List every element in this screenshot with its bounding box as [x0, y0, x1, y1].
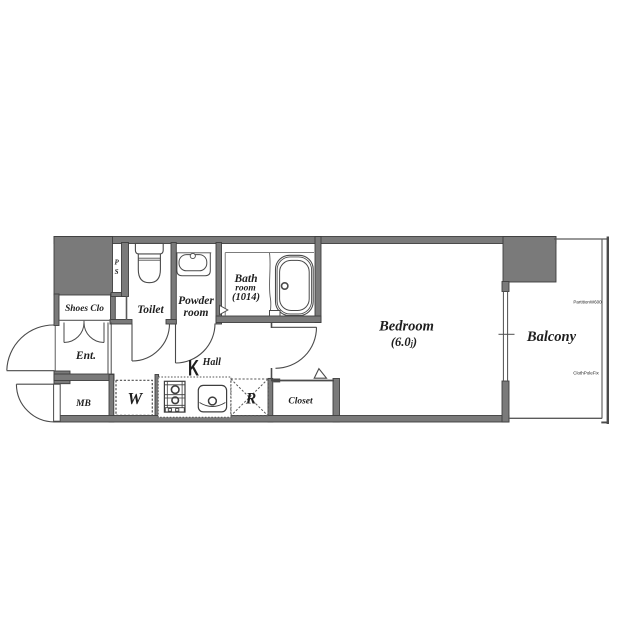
- svg-text:Hall: Hall: [202, 357, 222, 368]
- svg-text:(1014): (1014): [232, 292, 260, 303]
- svg-text:Balcony: Balcony: [526, 329, 577, 345]
- svg-text:Toilet: Toilet: [137, 304, 164, 316]
- svg-text:Closet: Closet: [288, 397, 313, 407]
- svg-text:Powder: Powder: [178, 295, 214, 307]
- svg-text:Shoes Clo: Shoes Clo: [65, 304, 104, 314]
- svg-text:P: P: [114, 259, 119, 267]
- svg-text:(6.0j): (6.0j): [391, 335, 417, 349]
- svg-text:PartitionW600: PartitionW600: [573, 300, 602, 305]
- svg-text:MB: MB: [75, 399, 91, 409]
- svg-text:W: W: [127, 389, 143, 408]
- svg-text:S: S: [115, 268, 119, 276]
- svg-text:K: K: [188, 356, 199, 381]
- svg-text:room: room: [184, 307, 209, 319]
- svg-text:R: R: [245, 391, 256, 408]
- svg-text:ClothPoleFix: ClothPoleFix: [573, 371, 599, 376]
- svg-text:Bedroom: Bedroom: [378, 319, 434, 335]
- svg-text:Ent.: Ent.: [75, 350, 96, 362]
